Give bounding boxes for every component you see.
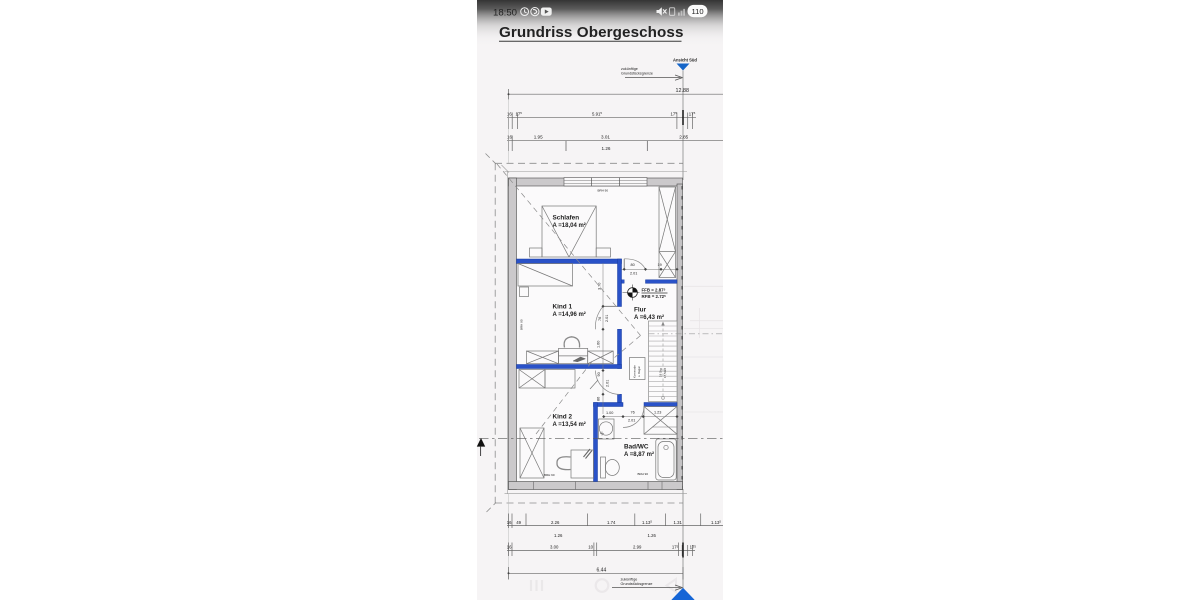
svg-text:86: 86	[597, 397, 601, 401]
svg-text:1.26: 1.26	[648, 533, 657, 538]
svg-text:3.01: 3.01	[601, 135, 610, 140]
svg-text:2.01: 2.01	[606, 380, 610, 387]
svg-text:BRH 90: BRH 90	[638, 472, 649, 476]
svg-text:BRH 90: BRH 90	[598, 189, 609, 193]
svg-text:1.95: 1.95	[534, 135, 543, 140]
svg-text:2.01: 2.01	[605, 315, 609, 322]
svg-text:49: 49	[516, 520, 521, 525]
svg-text:Flur: Flur	[634, 307, 647, 314]
svg-text:2.01: 2.01	[628, 419, 635, 423]
svg-text:zukünftige: zukünftige	[621, 577, 638, 581]
svg-text:Schlafen: Schlafen	[553, 215, 580, 222]
svg-text:6.44: 6.44	[597, 567, 607, 573]
svg-text:o. Regal: o. Regal	[637, 366, 641, 377]
svg-text:2.85: 2.85	[679, 135, 688, 140]
svg-text:A =8,87 m²: A =8,87 m²	[624, 451, 654, 458]
svg-text:2.01: 2.01	[630, 272, 637, 276]
svg-text:BRH 90: BRH 90	[544, 473, 555, 477]
svg-text:1.26: 1.26	[602, 146, 611, 151]
svg-text:17,5/28: 17,5/28	[663, 368, 667, 378]
svg-text:76: 76	[631, 411, 635, 415]
svg-text:Grundstücksgrenze: Grundstücksgrenze	[621, 72, 653, 76]
svg-text:A =18,04 m²: A =18,04 m²	[553, 222, 586, 229]
svg-text:16: 16	[507, 111, 512, 116]
svg-text:2.26: 2.26	[551, 520, 560, 525]
svg-text:16: 16	[507, 520, 512, 525]
svg-text:90: 90	[597, 372, 601, 376]
svg-text:2.99: 2.99	[633, 545, 642, 550]
svg-text:Kommode: Kommode	[632, 365, 636, 378]
svg-text:16: 16	[507, 135, 513, 140]
svg-text:A =6,43 m²: A =6,43 m²	[634, 314, 664, 321]
svg-text:1.23: 1.23	[654, 411, 661, 415]
svg-text:12.88: 12.88	[676, 88, 690, 94]
svg-text:FFB = 2.875: FFB = 2.875	[642, 288, 666, 293]
svg-text:A =14,96 m²: A =14,96 m²	[553, 311, 586, 318]
svg-text:110: 110	[692, 7, 704, 16]
svg-text:19: 19	[658, 263, 662, 267]
svg-text:1.26: 1.26	[554, 533, 563, 538]
svg-text:1.31: 1.31	[674, 520, 683, 525]
svg-text:76: 76	[598, 317, 602, 321]
svg-text:16: 16	[507, 545, 512, 550]
svg-text:18:50: 18:50	[493, 7, 517, 18]
svg-text:1.00: 1.00	[606, 411, 613, 415]
svg-text:1.74: 1.74	[607, 520, 616, 525]
svg-text:BRH 90: BRH 90	[520, 319, 524, 330]
svg-text:A =13,54 m²: A =13,54 m²	[553, 421, 586, 428]
svg-text:RFB = 2.725: RFB = 2.725	[642, 294, 667, 299]
svg-text:80: 80	[631, 263, 635, 267]
svg-text:zukünftige: zukünftige	[621, 67, 638, 71]
svg-text:Grundstücksgrenze: Grundstücksgrenze	[621, 582, 653, 586]
svg-text:Bad/WC: Bad/WC	[624, 444, 649, 451]
svg-text:10: 10	[588, 545, 593, 550]
svg-text:3.70: 3.70	[598, 283, 602, 290]
svg-text:Kind 2: Kind 2	[553, 414, 573, 421]
svg-text:Grundriss Obergeschoss: Grundriss Obergeschoss	[499, 24, 684, 41]
svg-text:Ansicht Süd: Ansicht Süd	[673, 58, 697, 63]
svg-text:Kind 1: Kind 1	[553, 304, 573, 311]
svg-text:1.60: 1.60	[597, 341, 601, 348]
svg-text:3.00: 3.00	[550, 545, 559, 550]
